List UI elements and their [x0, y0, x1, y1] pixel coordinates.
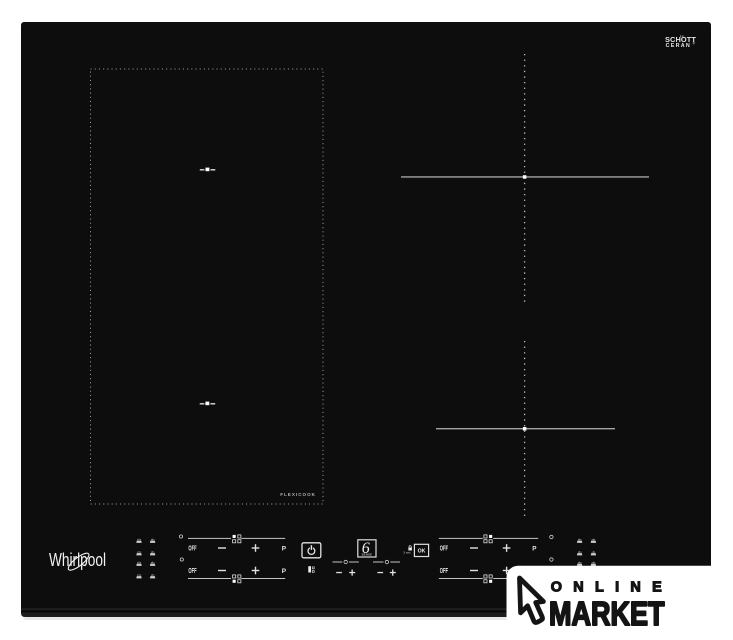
svg-text:SENSE: SENSE: [362, 552, 373, 556]
svg-text:OFF: OFF: [440, 546, 449, 553]
svg-text:FLEXICOOK: FLEXICOOK: [280, 492, 316, 497]
svg-text:3 sec: 3 sec: [403, 551, 411, 555]
svg-text:OFF: OFF: [440, 568, 449, 575]
svg-text:P: P: [532, 546, 537, 553]
svg-text:CERAN: CERAN: [666, 43, 691, 49]
svg-text:P: P: [282, 546, 287, 553]
svg-text:MARKET: MARKET: [549, 596, 665, 633]
svg-text:OK: OK: [418, 548, 426, 554]
svg-text:OFF: OFF: [188, 546, 197, 553]
svg-text:OFF: OFF: [188, 568, 197, 575]
svg-text:P: P: [282, 568, 287, 575]
svg-text:ONLINE: ONLINE: [551, 580, 673, 596]
